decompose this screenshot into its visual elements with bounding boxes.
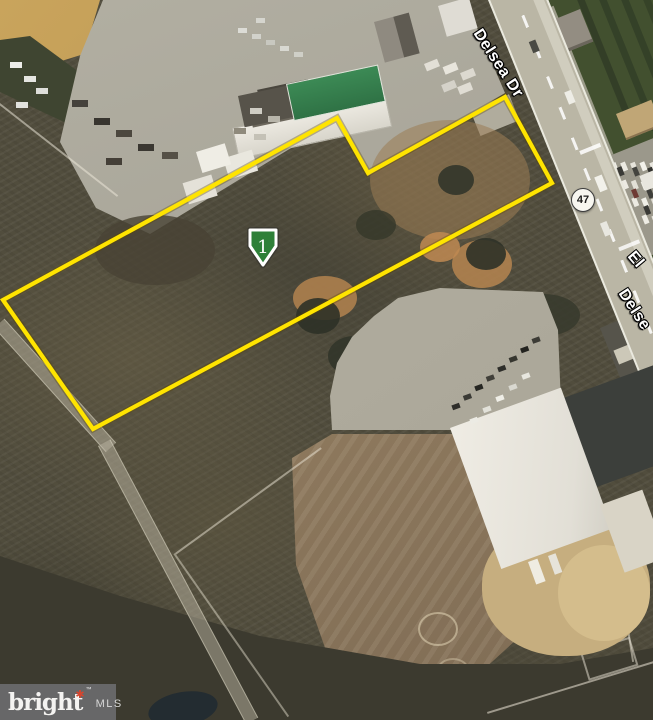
brand-suffix: MLS [96,698,123,710]
route-number: 47 [577,194,589,206]
orange-dirt-patch [420,232,460,262]
cars-row-top [238,28,247,33]
trucks-mid-yard [72,100,88,107]
shrub-clump [466,238,506,270]
marker-number: 1 [257,237,268,258]
brightmls-watermark: bright ✱ ™ MLS [0,684,116,720]
satellite-map: 1 Delsea Dr Delse El 47 bright ✱ ™ MLS [0,0,653,720]
vehicle-on-road [600,221,612,237]
trademark-symbol: ™ [86,687,92,693]
brand-wordmark: bright [8,691,82,714]
parked-vans-left [10,62,22,68]
shrub-clump [356,210,396,240]
vehicle-on-road [529,40,540,54]
track-ring [418,612,458,646]
route-47-shield: 47 [571,188,595,212]
brand-star-icon: ✱ [75,688,84,701]
shrub-clump [296,298,340,334]
junk-woods [95,215,215,285]
shrub-clump [438,165,474,195]
junk-containers [250,108,262,114]
white-canopy [639,166,653,191]
